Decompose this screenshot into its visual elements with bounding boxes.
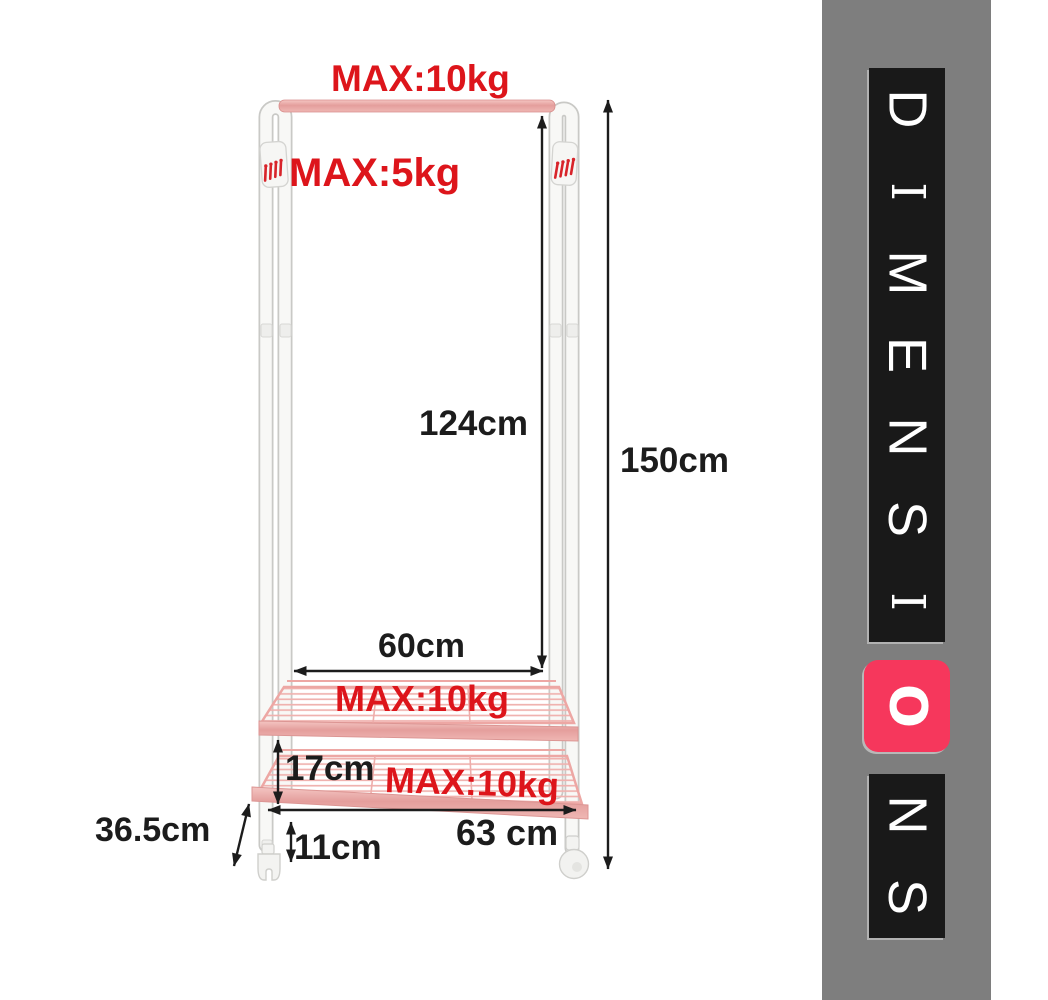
letter-s: S: [880, 879, 934, 915]
right-caster-wheel: [560, 836, 589, 879]
letter-i: I: [883, 592, 930, 611]
letter-o: O: [881, 684, 933, 728]
letter-n: N: [880, 796, 934, 835]
letter-tile-i2: I: [869, 560, 945, 642]
letter-i: I: [883, 182, 930, 201]
letter-tile-s1: S: [869, 478, 945, 560]
dim-label-base-clearance: 11cm: [294, 830, 382, 865]
hanging-bar: [279, 100, 555, 112]
letter-strip-top: D I M E N S I: [869, 68, 945, 642]
letter-tile-n1: N: [869, 396, 945, 478]
dimensions-banner: D I M E N S I O N S: [822, 0, 991, 1000]
letter-tile-d: D: [869, 68, 945, 150]
dim-label-base-width: 63 cm: [456, 815, 558, 851]
letter-tile-o-accent: O: [864, 660, 950, 752]
letter-n: N: [880, 418, 934, 457]
dim-line-36-5cm: [234, 804, 249, 866]
dim-label-depth: 36.5cm: [95, 813, 210, 847]
letter-tile-i1: I: [869, 150, 945, 232]
dim-label-shelf-width: 60cm: [378, 629, 465, 663]
letter-tile-m: M: [869, 232, 945, 314]
letter-e: E: [880, 337, 934, 373]
dim-label-shelf-spacing: 17cm: [285, 751, 375, 786]
weight-label-middle-shelf: MAX:10kg: [335, 681, 509, 717]
garment-rack-figure: [0, 0, 822, 1000]
dim-label-bar-height: 124cm: [419, 406, 528, 441]
letter-tile-n2: N: [869, 774, 945, 856]
weight-label-hanging-bar: MAX:10kg: [331, 60, 510, 97]
letter-s: S: [880, 501, 934, 537]
left-post: [261, 108, 291, 854]
letter-strip-bottom: N S: [869, 774, 945, 938]
weight-label-side-hooks: MAX:5kg: [289, 153, 460, 193]
letter-d: D: [880, 90, 934, 129]
product-dimensions-diagram: MAX:10kg MAX:5kg MAX:10kg MAX:10kg 124cm…: [0, 0, 1048, 1000]
letter-tile-e: E: [869, 314, 945, 396]
left-hook-panel: [259, 141, 288, 188]
letter-m: M: [880, 251, 934, 296]
letter-tile-s2: S: [869, 856, 945, 938]
right-hook-panel: [551, 141, 578, 185]
weight-label-bottom-shelf: MAX:10kg: [384, 762, 559, 804]
dim-label-total-height: 150cm: [620, 443, 729, 478]
